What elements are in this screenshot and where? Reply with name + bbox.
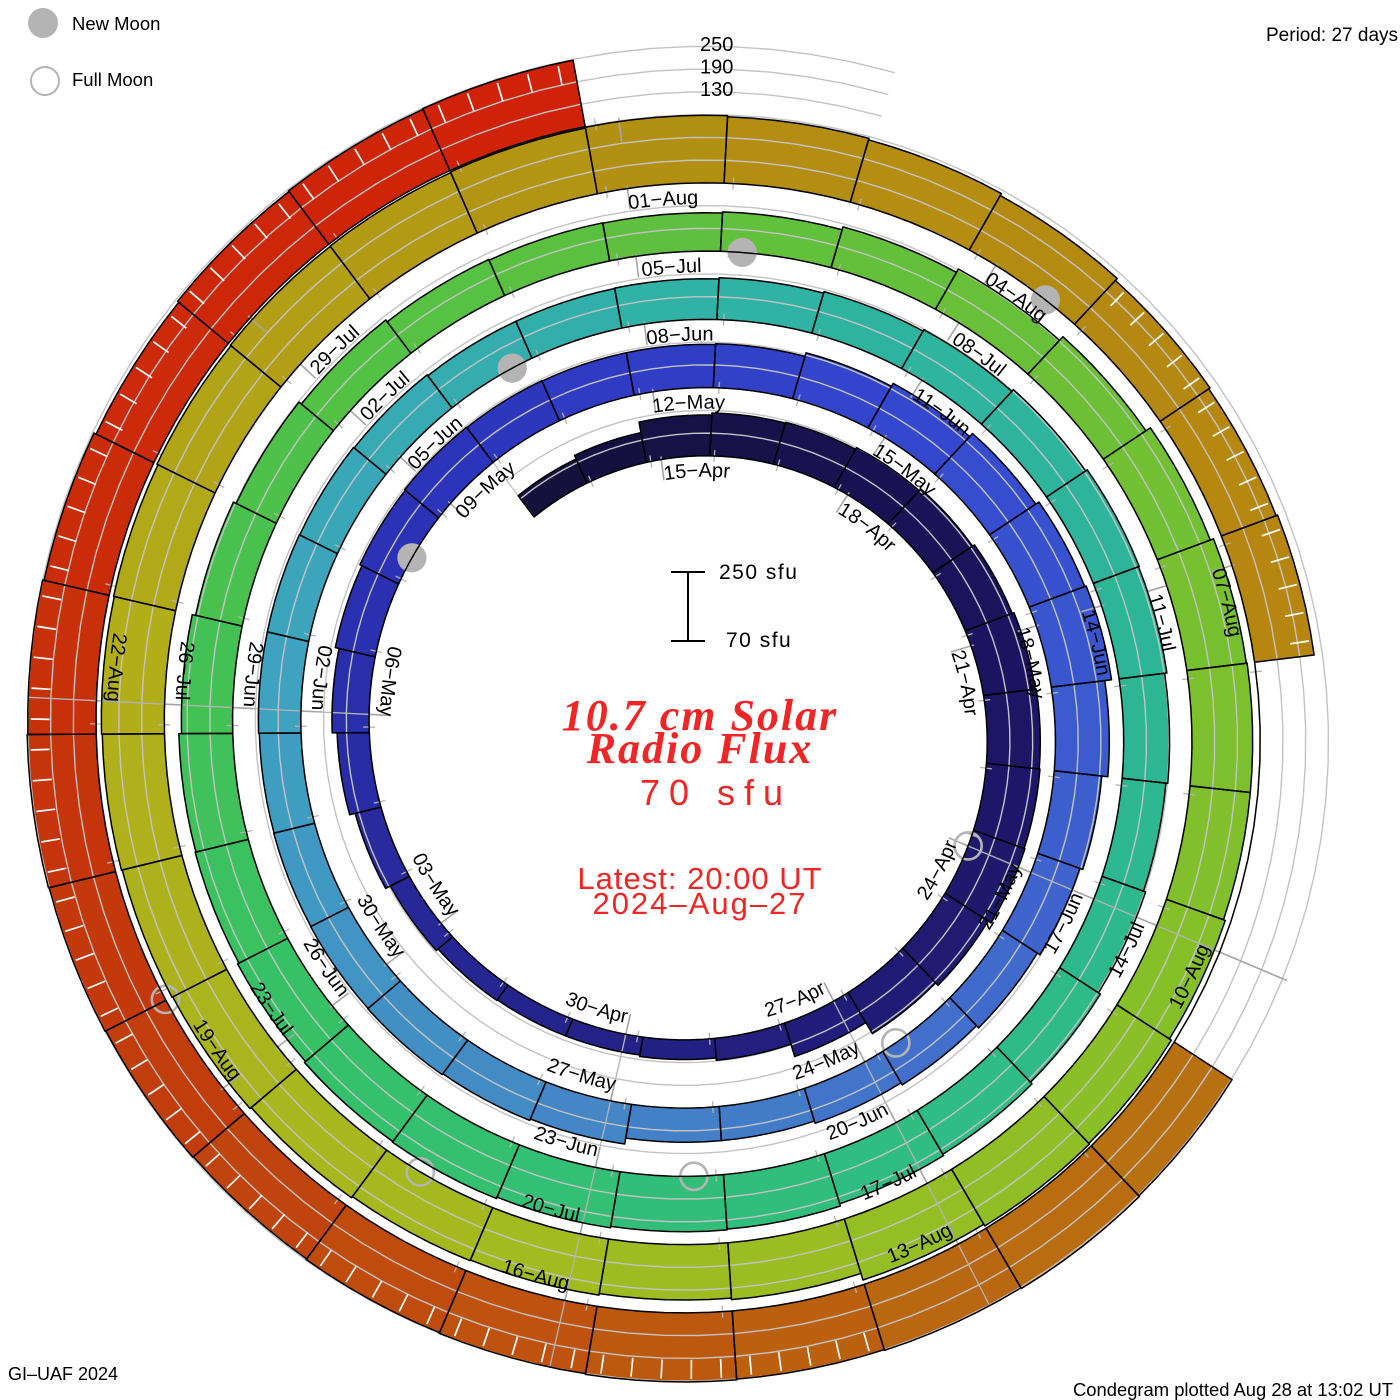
svg-text:15−Apr: 15−Apr — [662, 460, 731, 485]
svg-text:190: 190 — [700, 57, 733, 79]
svg-text:250: 250 — [700, 34, 733, 56]
svg-text:130: 130 — [700, 79, 733, 101]
